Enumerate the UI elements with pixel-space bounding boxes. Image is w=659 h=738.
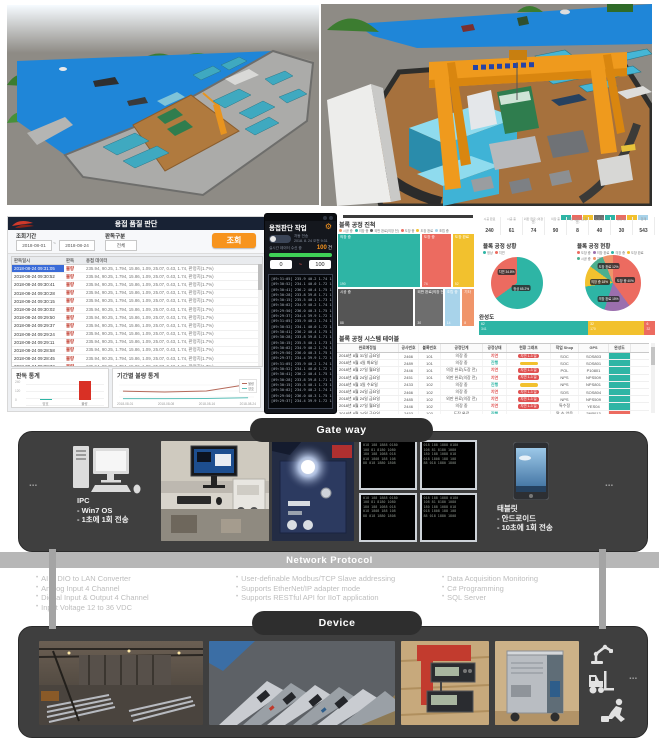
summary-strip: 시공 완료240시공 중61외판 완료 (의장 전)74의장 중90의장 완료 …: [479, 217, 655, 235]
legend-item: 지연: [495, 250, 505, 255]
summary-column: 의장 중90: [545, 217, 567, 235]
forklift-icon: [585, 669, 615, 695]
period-from-input[interactable]: 2018-08-01: [16, 240, 52, 251]
log-entry: [09:30:41] 236.2 40.4 1.75 15.9 1.10 수신: [271, 372, 330, 377]
cell-gps: P10801: [579, 367, 609, 373]
block-label: 기타: [464, 290, 471, 295]
app-titlebar: [265, 214, 336, 221]
dashboard-header: 용접 품질 판단: [8, 217, 264, 230]
legend-dot: [495, 251, 498, 254]
legend-item: 시공 중: [577, 256, 591, 261]
cell-result: 불량: [64, 363, 84, 367]
cell-shop: 특수정: [551, 403, 579, 409]
cell-project: 2485: [399, 396, 419, 402]
summary-column: 합계543: [633, 217, 655, 235]
protocol-list-converter: •AI & DIO to LAN Converter•Analog Input …: [36, 574, 231, 612]
completion-segment: 62341: [479, 321, 588, 335]
close-icon[interactable]: [329, 216, 333, 220]
cell-date: 2018년 8월 27일 월요일: [337, 367, 399, 373]
pie-label: 정상 65.2%: [512, 285, 531, 291]
x-tick: 2018-08-16: [199, 402, 215, 406]
app-title: 용접판단 작업: [269, 222, 307, 232]
legend-dot: [435, 229, 438, 232]
cell-date: 2018년 9월 4일 화요일: [337, 360, 399, 366]
block-value: 52: [455, 282, 459, 286]
summary-column: 외판 완료 (의장 전)74: [523, 217, 545, 235]
dock-crane-render: [321, 4, 652, 206]
cell-graph: 지연 1-3 일: [507, 389, 551, 395]
block-value: 8: [464, 321, 466, 325]
block-label: 도장 완료: [455, 235, 469, 240]
cell-completion: [609, 375, 631, 381]
cell-project: 2451: [399, 375, 419, 381]
tablet-title: 태블릿: [497, 504, 518, 513]
log-entry: [09:29:37] 234.4 39.9 1.72 15.6 1.07 수신: [271, 356, 330, 361]
gateway-workstation-photo: [161, 441, 269, 541]
y-tick: 240: [15, 380, 20, 384]
bullet-text: SQL Server: [447, 593, 486, 603]
cell-gps: NPS509: [579, 375, 609, 381]
cell-state: 지연: [483, 367, 507, 373]
period-tilde: ~: [53, 241, 56, 247]
delay-badge: 지연 1-3 일: [518, 375, 538, 380]
protocol-bullet: •AI & DIO to LAN Converter: [36, 574, 231, 584]
cell-time: 2018-08-24 09:28:32: [12, 363, 64, 367]
legend-item: 도장 중: [577, 250, 591, 255]
table-row: 2018년 8월 27일 월요일2446102의장 중지연지연 1-3 일특수정…: [337, 403, 649, 410]
receive-status-label: 실시간 데이터 수신 중: [269, 246, 302, 250]
block-value: 88: [340, 321, 344, 325]
table-row[interactable]: 2018-08-24 09:29:50불량235.94, 90.25, 1.79…: [12, 314, 262, 322]
table-header-row: 판독일시 판독 용접 데이터: [12, 257, 262, 265]
block-process-dashboard: 블록 공정 진척 시공 중의장 중외판 완료(의장 전)도장 중도장 완료조립 …: [337, 215, 655, 415]
completion-segment: 32170: [588, 321, 644, 335]
cell-date: 2018년 8월 24일 금요일: [337, 396, 399, 402]
cell-block: 102: [419, 396, 441, 402]
delay-badge: 지연 1-3 일: [518, 390, 538, 395]
gateway-machine-photo: [272, 441, 354, 541]
col-header: 공정상태: [483, 344, 507, 352]
cell-block: 102: [419, 403, 441, 409]
cell-project: 2466: [399, 353, 419, 359]
col-header: 완성도: [609, 344, 631, 352]
cell-block: 102: [419, 382, 441, 388]
summary-header: 의장 중: [551, 218, 560, 221]
table-header-row: 완료예정일공사번호블록번호공정단계공정상태현황 그래프작업 ShopGPS완성도: [337, 344, 649, 353]
treemap-block: 외판 완료(의장 전)30: [414, 288, 443, 327]
x-tick: 양호: [42, 401, 48, 406]
cell-block: 101: [419, 360, 441, 366]
legend-dot: [355, 229, 358, 232]
delay-badge: 지연 1-3 일: [518, 354, 538, 359]
cell-time: 2018-08-24 09:30:15: [12, 298, 64, 305]
cell-date: 2018년 8월 24일 금요일: [337, 375, 399, 381]
cell-gps: SOS801: [579, 360, 609, 366]
protocol-bullet: •C# Programming: [442, 584, 602, 594]
cell-time: 2018-08-24 09:28:58: [12, 347, 64, 354]
delay-badge: 지연 1-3 일: [518, 404, 538, 409]
cell-graph: 지연 1-3 일: [507, 367, 551, 373]
cell-block: 101: [419, 367, 441, 373]
treemap-block: 의장 중190: [337, 233, 421, 288]
cell-data: 235.94, 90.25, 1.794, 15.86, 1.09, 25.07…: [84, 355, 262, 362]
legend-dot: [577, 251, 580, 254]
cell-completion: [609, 353, 631, 359]
table-row[interactable]: 2018-08-24 09:28:45불량235.94, 90.25, 1.79…: [12, 355, 262, 363]
robot-arm-icon: [589, 639, 615, 665]
legend-dot: [483, 251, 486, 254]
cell-data: 235.94, 90.25, 1.794, 15.86, 1.09, 25.07…: [84, 306, 262, 313]
cell-state: 지연: [483, 403, 507, 409]
summary-header: 의장 완료 (도장 전): [567, 218, 588, 225]
table-row[interactable]: 2018-08-24 09:31:05불량235.94, 90.25, 1.79…: [12, 265, 262, 273]
cell-gps: NPS509: [579, 396, 609, 402]
legend-dot: [577, 257, 580, 260]
log-entry: [09:31:05] 235.9 40.2 1.74 15.8 1.09 수신: [271, 319, 330, 324]
protocol-bullet: •Input Voltage 12 to 36 VDC: [36, 603, 231, 613]
range-from-input[interactable]: 0: [270, 260, 292, 269]
cell-date: 2018년 9월 3일 수요일: [337, 382, 399, 388]
cell-shop: NPS: [551, 396, 579, 402]
sensor-meter-photo: [401, 641, 489, 725]
search-button[interactable]: 조회: [212, 233, 256, 248]
summary-column: 도장 전40: [589, 217, 611, 235]
x-tick: 2018-08-08: [158, 402, 174, 406]
protocol-list-modbus: •User-definable Modbus/TCP Slave address…: [236, 574, 441, 603]
cell-gps: SOS804: [579, 389, 609, 395]
delay-badge: 지연 1-3 일: [518, 368, 538, 373]
completion-fill: [609, 396, 630, 402]
protocol-bullet: •User-definable Modbus/TCP Slave address…: [236, 574, 441, 584]
cell-gps: YES04: [579, 403, 609, 409]
x-tick: 2018-08-01: [117, 402, 133, 406]
col-header: 작업 Shop: [551, 344, 579, 352]
worker-icon: [599, 697, 629, 723]
legend-label: 도장 완료: [631, 250, 644, 255]
block-label: 의장 중: [340, 235, 351, 240]
summary-header: 도장 중: [617, 218, 626, 221]
table-scrollbar[interactable]: [258, 264, 262, 366]
cell-data: 235.94, 90.25, 1.794, 15.86, 1.09, 25.07…: [84, 322, 262, 329]
summary-header: 외판 완료 (의장 전): [523, 218, 544, 225]
log-entry: [09:30:02] 234.9 40.2 1.74 15.7 1.08 수신: [271, 303, 330, 308]
segment-count: 341: [481, 327, 487, 331]
protocol-list-software: •Data Acquisition Monitoring•C# Programm…: [442, 574, 602, 603]
cell-state: 지연: [483, 353, 507, 359]
legend-item: 양호: [242, 386, 254, 391]
cell-data: 235.94, 90.25, 1.794, 15.86, 1.09, 25.07…: [84, 339, 262, 346]
bullet-icon: •: [236, 593, 238, 603]
type-select[interactable]: 전체: [105, 240, 137, 251]
range-to-input[interactable]: 100: [309, 260, 331, 269]
treemap-block: 시공 중88: [337, 288, 414, 327]
block-process-table: 완료예정일공사번호블록번호공정단계공정상태현황 그래프작업 ShopGPS완성도…: [337, 343, 649, 414]
ipc-computer-icon: [71, 444, 143, 494]
cell-shop: POL: [551, 367, 579, 373]
device-label-text: Device: [319, 617, 356, 629]
timestamp-label: 2018. 8. 24 오전 9:31: [294, 239, 328, 243]
table-row[interactable]: 2018-08-24 09:28:32불량235.94, 90.25, 1.79…: [12, 363, 262, 367]
table-row[interactable]: 2018-08-24 09:30:28불량235.94, 90.25, 1.79…: [12, 290, 262, 298]
x-tick: 2018-08-24: [240, 402, 256, 406]
cell-gps: NPS801: [579, 382, 609, 388]
table-row: 2018년 9월 4일 화요일2489101의장 중진행SOCSOS801: [337, 360, 649, 367]
protocol-bullet: •Analog Input 4 Channel: [36, 584, 231, 594]
bullet-icon: •: [36, 603, 38, 613]
cell-stage: 의장 중: [441, 389, 483, 395]
col-header: 공사번호: [399, 344, 419, 352]
treemap-block: 도장 완료52: [452, 233, 475, 288]
line-plot-area: [117, 380, 256, 401]
cell-result: 불량: [64, 314, 84, 321]
cell-state: 지연: [483, 396, 507, 402]
bar-group: 불량: [76, 380, 94, 406]
cell-result: 불량: [64, 265, 84, 272]
cell-project: 2446: [399, 403, 419, 409]
cell-graph: 지연 1-3 일: [507, 375, 551, 381]
legend-dot: [627, 251, 630, 254]
protocol-bullet: •Digital Input & Output 4 Channel: [36, 593, 231, 603]
col-header-data: 용접 데이터: [84, 257, 262, 264]
cell-shop: 알 수 없음: [551, 411, 579, 415]
segment-percent: 62: [481, 322, 485, 326]
legend-dot: [611, 251, 614, 254]
log-entry: [09:29:37] 234.4 39.9 1.72 15.6 1.07 수신: [271, 399, 330, 404]
delay-badge: 지연 1-3 일: [518, 397, 538, 402]
transmission-log-list[interactable]: [09:31:05] 235.9 40.2 1.74 15.8 1.09 수신[…: [268, 274, 333, 409]
cell-data: 235.94, 90.25, 1.794, 15.86, 1.09, 25.07…: [84, 347, 262, 354]
cell-state: 진행: [483, 360, 507, 366]
cell-graph: [507, 360, 551, 366]
minimize-icon[interactable]: [323, 216, 327, 220]
cell-graph: 지연 1-3 일: [507, 353, 551, 359]
table-row[interactable]: 2018-08-24 09:28:58불량235.94, 90.25, 1.79…: [12, 347, 262, 355]
cell-project: 2446: [399, 367, 419, 373]
cell-time: 2018-08-24 09:29:37: [12, 322, 64, 329]
cell-completion: [609, 382, 631, 388]
summary-header: 시공 중: [507, 218, 516, 221]
header-strip: [343, 215, 473, 218]
block-status-pie: 정상 65.2%지연 34.8%: [491, 257, 543, 309]
legend-item: 정상: [483, 250, 493, 255]
legend-item: 도장 완료: [627, 250, 644, 255]
completion-fill: [609, 411, 630, 415]
summary-header: 도장 전: [595, 218, 604, 221]
legend-item: 의장 완료: [593, 250, 610, 255]
pie-label: 도장 중 40%: [615, 277, 635, 283]
gateway-more-right: ...: [605, 478, 613, 489]
completion-title: 완성도: [479, 313, 494, 321]
table-row[interactable]: 2018-08-24 09:30:41불량235.94, 90.25, 1.79…: [12, 281, 262, 289]
page-title: 용접 품질 판단: [8, 219, 264, 229]
cell-result: 불량: [64, 273, 84, 280]
table-row: 2018년 8월 24일 금요일2485102외판 완료(의장 전)지연지연 1…: [337, 396, 649, 403]
cell-shop: NPS: [551, 375, 579, 381]
tablet-line-rate: - 10초에 1회 전송: [497, 523, 553, 532]
cell-data: 235.94, 90.25, 1.794, 15.86, 1.09, 25.07…: [84, 290, 262, 297]
cell-data: 235.94, 90.25, 1.794, 15.86, 1.09, 25.07…: [84, 265, 262, 272]
table-row[interactable]: 2018-08-24 09:29:11불량235.94, 90.25, 1.79…: [12, 339, 262, 347]
period-to-input[interactable]: 2018-08-24: [59, 240, 95, 251]
gear-icon[interactable]: ⚙: [325, 223, 332, 231]
bar-1: [40, 399, 52, 400]
cell-state: 진행: [483, 382, 507, 388]
bullet-icon: •: [442, 584, 444, 594]
block-value: 74: [424, 282, 428, 286]
cell-time: 2018-08-24 09:30:28: [12, 290, 64, 297]
completion-fill: [609, 367, 630, 373]
tablet-line-os: - 안드로이드: [497, 514, 536, 523]
bullet-icon: •: [236, 574, 238, 584]
col-header: 완료예정일: [337, 344, 399, 352]
bar-2: [79, 381, 91, 400]
cell-data: 235.94, 90.25, 1.794, 15.86, 1.09, 25.07…: [84, 314, 262, 321]
type-label: 판독구분: [105, 232, 125, 240]
progress-badge: [520, 383, 538, 387]
treemap-block: 기타8: [461, 288, 475, 327]
progress-badge: [520, 362, 538, 366]
cell-completion: [609, 396, 631, 402]
block-value: 14: [447, 321, 451, 325]
ipc-line-os: - Win7 OS: [77, 506, 112, 515]
chart-title: 판독 통계: [16, 371, 40, 380]
cell-completion: [609, 389, 631, 395]
pie-label: 의장 완료 15%: [597, 296, 620, 302]
cell-data: 235.94, 90.25, 1.794, 15.86, 1.09, 25.07…: [84, 281, 262, 288]
cell-time: 2018-08-24 09:28:45: [12, 355, 64, 362]
cell-date: 2018년 8월 27일 월요일: [337, 403, 399, 409]
table-row[interactable]: 2018-08-24 09:30:52불량235.94, 90.25, 1.79…: [12, 273, 262, 281]
cell-time: 2018-08-24 09:29:11: [12, 339, 64, 346]
cell-result: 불량: [64, 355, 84, 362]
cell-graph: [507, 382, 551, 388]
x-tick: 불량: [81, 401, 87, 406]
summary-value: 61: [509, 228, 515, 234]
bullet-text: Data Acquisition Monitoring: [447, 574, 538, 584]
cell-project: 2433: [399, 382, 419, 388]
defect-trend-chart: 기간별 불량 통계 2018-08-012018-08-082018-08-16…: [112, 368, 261, 408]
log-entry: [09:30:02] 234.9 40.2 1.74 15.7 1.08 수신: [271, 388, 330, 393]
device-more: ...: [629, 671, 637, 682]
completion-fill: [609, 382, 630, 388]
cell-time: 2018-08-24 09:31:05: [12, 265, 64, 272]
pie-label: 지연 34.8%: [497, 269, 516, 275]
cell-block: 103: [419, 411, 441, 415]
cell-gps: 2NP013: [579, 411, 609, 415]
welding-mobile-app: 용접판단 작업 ⚙ 자동 전송 2018. 8. 24 오전 9:31 실시간 …: [264, 213, 337, 414]
log-entry: [09:30:52] 234.1 40.0 1.72 15.7 1.08 수신: [271, 282, 330, 287]
summary-value: 40: [597, 228, 603, 234]
legend-label: 의장 중: [615, 250, 625, 255]
table-row: 2018년 8월 27일 월요일2446101의장 완료(도장 전)지연지연 1…: [337, 367, 649, 374]
table-row: 2018년 9월 3일 수요일2433102의장 중진행NPSNPS801: [337, 382, 649, 389]
cell-result: 불량: [64, 322, 84, 329]
completion-fill: [609, 353, 630, 359]
range-separator: ~: [299, 262, 302, 268]
block-value: 190: [340, 282, 346, 286]
auto-send-label: 자동 전송: [294, 234, 308, 238]
table-row: 2018년 8월 24일 금요일2453103도장 완료진행알 수 없음2NP0…: [337, 411, 649, 415]
summary-column: 의장 완료 (도장 전)8: [567, 217, 589, 235]
cell-completion: [609, 411, 631, 415]
block-label: 외판 완료(의장 전): [417, 290, 443, 295]
cell-state: 진행: [483, 411, 507, 415]
legend-label: 의장 완료: [597, 250, 610, 255]
cell-state: 지연: [483, 375, 507, 381]
cell-completion: [609, 360, 631, 366]
cell-stage: 의장 중: [441, 360, 483, 366]
terminal-screens-grid: 018 188 1888 0180108 81 8180 1080180 188…: [359, 440, 477, 542]
table-row[interactable]: 2018-08-24 09:29:24불량235.94, 90.25, 1.79…: [12, 331, 262, 339]
legend-dot: [401, 229, 404, 232]
summary-column: 시공 완료240: [479, 217, 501, 235]
table-row[interactable]: 2018-08-24 09:29:37불량235.94, 90.25, 1.79…: [12, 322, 262, 330]
cell-result: 불량: [64, 298, 84, 305]
table-row[interactable]: 2018-08-24 09:30:15불량235.94, 90.25, 1.79…: [12, 298, 262, 306]
table-scrollbar[interactable]: [651, 343, 655, 413]
cell-stage: 의장 중: [441, 382, 483, 388]
legend-dot: [416, 229, 419, 232]
terminal-screen: 018 188 1888 0180108 81 8180 1080180 188…: [420, 493, 478, 543]
ipc-title: IPC: [77, 496, 90, 505]
treemap-block: 도장 중74: [421, 233, 452, 288]
connector-line-left: [49, 549, 56, 629]
network-protocol-label: Network Protocol: [286, 555, 373, 566]
treemap-block: 조립 중14: [444, 288, 462, 327]
welding-machine-photo: [495, 641, 579, 725]
legend-dot: [593, 257, 596, 260]
gateway-section-label: Gate way: [250, 418, 433, 442]
segment-count: 170: [590, 327, 596, 331]
y-tick: 0: [15, 398, 20, 402]
shipyard-3d-overview-viewport[interactable]: [7, 5, 319, 205]
bar-plot-area: 양호불량: [26, 380, 104, 406]
cell-time: 2018-08-24 09:29:24: [12, 331, 64, 338]
col-header: 블록번호: [419, 344, 441, 352]
cell-block: 102: [419, 389, 441, 395]
auto-send-toggle[interactable]: [269, 235, 291, 243]
device-panel: ...: [18, 626, 648, 738]
line-series-양호: [123, 398, 248, 399]
legend-dot: [593, 251, 596, 254]
summary-column: 도장 중30: [611, 217, 633, 235]
block-label: 시공 중: [340, 290, 351, 295]
cell-date: 2018년 8월 24일 금요일: [337, 411, 399, 415]
cell-gps: SOS803: [579, 353, 609, 359]
legend-label: 도장 중: [581, 250, 591, 255]
cell-time: 2018-08-24 09:29:50: [12, 314, 64, 321]
cell-project: 2453: [399, 411, 419, 415]
cell-block: 101: [419, 375, 441, 381]
bullet-text: Supports EtherNet/IP adapter mode: [241, 584, 360, 594]
col-header: 현황 그래프: [507, 344, 551, 352]
dock-crane-3d-viewport[interactable]: [321, 4, 652, 206]
log-entry: [09:30:28] 233.8 39.8 1.71 15.6 1.07 수신: [271, 335, 330, 340]
bullet-icon: •: [36, 574, 38, 584]
cell-data: 235.94, 90.25, 1.794, 15.86, 1.09, 25.07…: [84, 298, 262, 305]
tablet-icon: [513, 442, 549, 500]
cell-time: 2018-08-24 09:30:41: [12, 281, 64, 288]
network-protocol-band: Network Protocol: [0, 552, 659, 568]
gateway-more-left: ...: [29, 478, 37, 489]
cell-stage: 외판 완료(의장 전): [441, 375, 483, 381]
table-row[interactable]: 2018-08-24 09:30:02불량235.94, 90.25, 1.79…: [12, 306, 262, 314]
segment-percent: 32: [590, 322, 594, 326]
completion-fill: [609, 375, 630, 381]
y-tick: 120: [15, 389, 20, 393]
table-row: 2018년 8월 24일 금요일2451101외판 완료(의장 전)지연지연 1…: [337, 375, 649, 382]
cell-project: 2489: [399, 360, 419, 366]
